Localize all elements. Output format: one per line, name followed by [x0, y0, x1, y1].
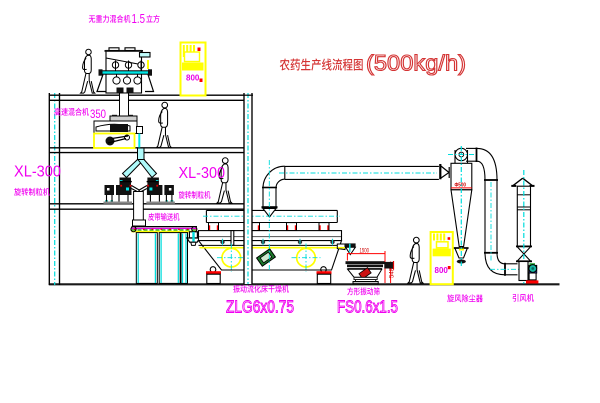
- svg-text:XL-300: XL-300: [14, 164, 61, 181]
- svg-text:FS0.6x1.5: FS0.6x1.5: [337, 297, 398, 317]
- svg-text:XL-300: XL-300: [179, 165, 226, 182]
- svg-text:800: 800: [186, 74, 200, 83]
- svg-text:(500kg/h): (500kg/h): [366, 51, 466, 76]
- svg-text:ZLG6x0.75: ZLG6x0.75: [226, 297, 294, 317]
- svg-text:350: 350: [90, 107, 106, 121]
- svg-text:1500: 1500: [360, 249, 370, 255]
- svg-text:Φ500: Φ500: [455, 182, 467, 188]
- svg-text:800: 800: [435, 266, 449, 275]
- svg-text:548: 548: [390, 267, 396, 278]
- svg-text:1.5: 1.5: [132, 11, 146, 26]
